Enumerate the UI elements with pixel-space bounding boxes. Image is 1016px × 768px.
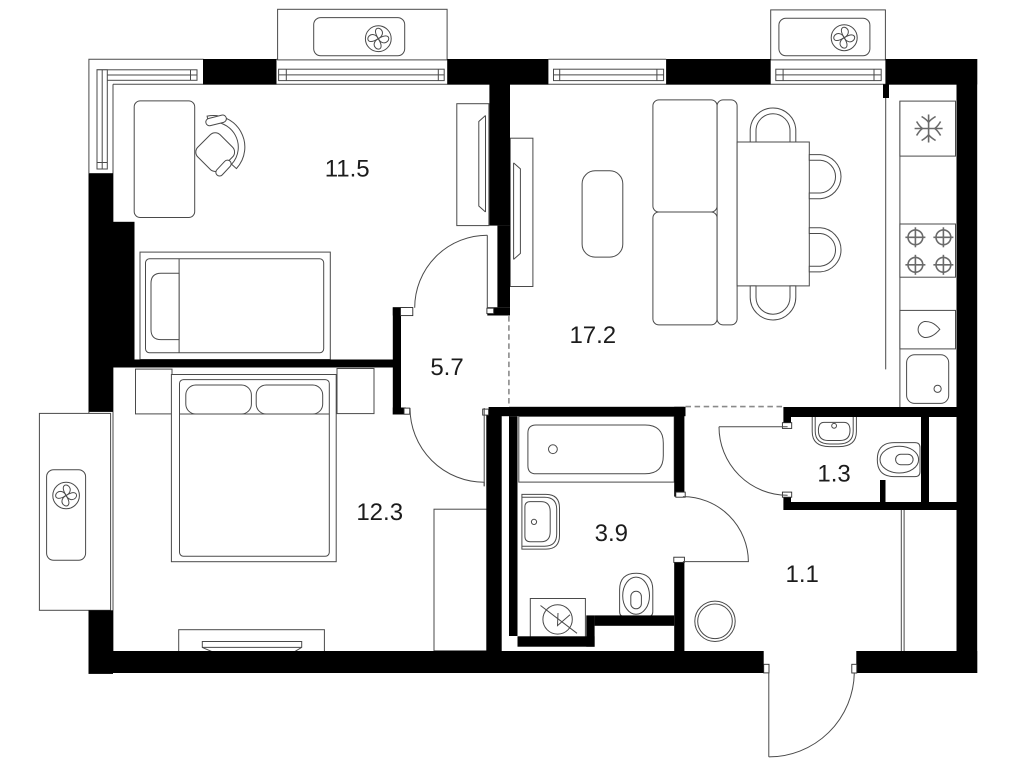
- svg-text:3.9: 3.9: [595, 520, 628, 547]
- svg-text:1.3: 1.3: [817, 461, 850, 488]
- svg-text:5.7: 5.7: [430, 354, 463, 381]
- svg-text:17.2: 17.2: [569, 322, 616, 349]
- svg-text:11.5: 11.5: [325, 156, 370, 183]
- svg-text:12.3: 12.3: [356, 499, 403, 526]
- svg-text:1.1: 1.1: [786, 561, 819, 588]
